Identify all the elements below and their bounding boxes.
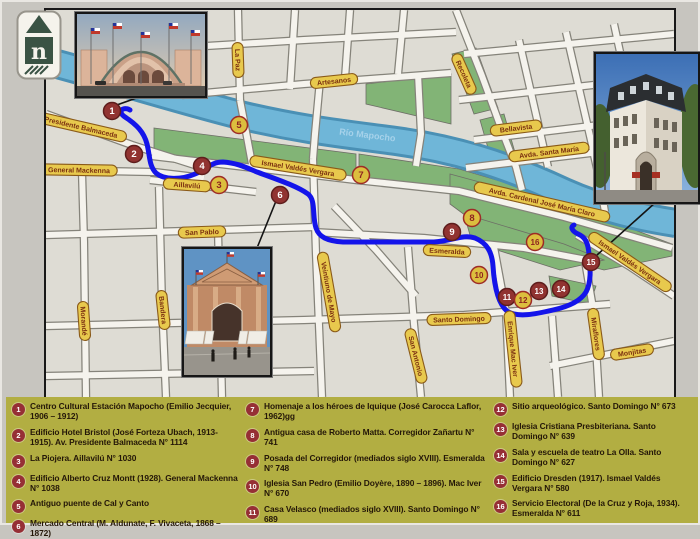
legend-item-text: Antiguo puente de Cal y Canto [30,499,149,509]
svg-text:n: n [31,39,47,65]
legend-item-text: Edificio Dresden (1917). Ismael Valdés V… [512,474,692,494]
route-marker-6: 6 [272,187,289,204]
route-marker-12: 12 [515,292,532,309]
photo-estacion-mapocho [75,12,207,98]
legend-item-text: Sitio arqueológico. Santo Domingo N° 673 [512,402,676,412]
svg-text:6: 6 [277,190,282,201]
legend-column-3: 12Sitio arqueológico. Santo Domingo N° 6… [494,402,692,539]
legend-item-text: Sala y escuela de teatro La Olla. Santo … [512,448,692,468]
svg-text:14: 14 [557,285,566,294]
legend-marker-number: 10 [246,480,259,493]
route-marker-14: 14 [553,281,570,298]
legend-item-text: Homenaje a los héroes de Iquique (José C… [264,402,488,422]
legend-item-text: Mercado Central (M. Aldunate, F. Vivacet… [30,519,240,539]
legend-marker-number: 4 [12,475,25,488]
svg-text:9: 9 [449,227,454,238]
legend-item-12: 12Sitio arqueológico. Santo Domingo N° 6… [494,402,692,416]
legend-item-10: 10Iglesia San Pedro (Emilio Doyère, 1890… [246,479,488,499]
legend-item-1: 1Centro Cultural Estación Mapocho (Emili… [12,402,240,422]
legend: 1Centro Cultural Estación Mapocho (Emili… [6,397,698,523]
svg-text:San Pablo: San Pablo [185,229,219,237]
route-marker-8: 8 [464,210,481,227]
street-label-general-mackenna: General Mackenna [46,164,117,176]
legend-item-11: 11Casa Velasco (mediados siglo XVIII). S… [246,505,488,525]
legend-marker-number: 9 [246,455,259,468]
legend-item-text: La Piojera. Aillavilú N° 1030 [30,454,136,464]
route-marker-5: 5 [231,117,248,134]
legend-item-text: Iglesia San Pedro (Emilio Doyère, 1890 –… [264,479,488,499]
legend-marker-number: 14 [494,449,507,462]
legend-marker-number: 5 [12,500,25,513]
svg-text:10: 10 [475,271,484,280]
svg-text:1: 1 [109,106,115,117]
north-logo: n [16,10,62,80]
legend-item-15: 15Edificio Dresden (1917). Ismael Valdés… [494,474,692,494]
legend-item-14: 14Sala y escuela de teatro La Olla. Sant… [494,448,692,468]
legend-marker-number: 1 [12,403,25,416]
legend-marker-number: 2 [12,429,25,442]
route-marker-4: 4 [194,158,211,175]
legend-column-1: 1Centro Cultural Estación Mapocho (Emili… [12,402,240,539]
legend-item-text: Casa Velasco (mediados siglo XVIII). San… [264,505,488,525]
svg-text:11: 11 [503,293,512,302]
svg-text:3: 3 [216,180,221,191]
legend-item-7: 7Homenaje a los héroes de Iquique (José … [246,402,488,422]
legend-item-text: Edificio Hotel Bristol (José Forteza Uba… [30,428,240,448]
svg-text:General Mackenna: General Mackenna [48,167,110,175]
legend-marker-number: 6 [12,520,25,533]
legend-item-13: 13Iglesia Cristiana Presbiteriana. Santo… [494,422,692,442]
svg-text:12: 12 [519,296,528,305]
legend-item-6: 6Mercado Central (M. Aldunate, F. Vivace… [12,519,240,539]
svg-text:15: 15 [587,258,596,267]
route-marker-7: 7 [353,167,370,184]
street-label-la-paz: La Paz [232,42,244,77]
legend-item-9: 9Posada del Corregidor (mediados siglo X… [246,454,488,474]
legend-item-3: 3La Piojera. Aillavilú N° 1030 [12,454,240,468]
route-marker-10: 10 [471,267,488,284]
legend-item-text: Antigua casa de Roberto Matta. Corregido… [264,428,488,448]
map-page: Río MapochoPresidente BalmacedaGeneral M… [0,0,700,525]
legend-marker-number: 7 [246,403,259,416]
route-marker-9: 9 [444,224,461,241]
legend-item-5: 5Antiguo puente de Cal y Canto [12,499,240,513]
photo-mercado-central [182,247,272,377]
legend-item-2: 2Edificio Hotel Bristol (José Forteza Ub… [12,428,240,448]
route-marker-13: 13 [531,283,548,300]
svg-text:16: 16 [531,238,540,247]
route-marker-2: 2 [126,146,143,163]
street-label-esmeralda: Esmeralda [423,244,471,257]
svg-text:13: 13 [535,287,544,296]
legend-marker-number: 11 [246,506,259,519]
legend-item-text: Edificio Alberto Cruz Montt (1928). Gene… [30,474,240,494]
svg-text:8: 8 [469,213,474,224]
legend-marker-number: 15 [494,475,507,488]
legend-marker-number: 3 [12,455,25,468]
svg-text:4: 4 [199,161,205,172]
svg-text:7: 7 [358,170,363,181]
legend-item-text: Posada del Corregidor (mediados siglo XV… [264,454,488,474]
svg-text:La Paz: La Paz [233,49,241,72]
legend-item-16: 16Servicio Electoral (De la Cruz y Roja,… [494,499,692,519]
legend-marker-number: 13 [494,423,507,436]
street-label-san-pablo: San Pablo [178,226,226,239]
legend-item-text: Servicio Electoral (De la Cruz y Roja, 1… [512,499,692,519]
street-label-morand: Morandé [77,301,91,341]
route-marker-11: 11 [499,289,516,306]
photo-edificio-dresden [594,52,700,204]
route-marker-16: 16 [527,234,544,251]
legend-column-2: 7Homenaje a los héroes de Iquique (José … [246,402,488,539]
legend-item-text: Centro Cultural Estación Mapocho (Emilio… [30,402,240,422]
route-marker-15: 15 [583,254,600,271]
svg-text:5: 5 [236,120,242,131]
legend-item-text: Iglesia Cristiana Presbiteriana. Santo D… [512,422,692,442]
legend-marker-number: 16 [494,500,507,513]
route-marker-1: 1 [104,103,121,120]
street-label-santo-domingo: Santo Domingo [427,312,491,325]
legend-item-4: 4Edificio Alberto Cruz Montt (1928). Gen… [12,474,240,494]
svg-text:2: 2 [131,149,136,160]
legend-marker-number: 12 [494,403,507,416]
route-marker-3: 3 [211,177,228,194]
legend-item-8: 8Antigua casa de Roberto Matta. Corregid… [246,428,488,448]
legend-marker-number: 8 [246,429,259,442]
